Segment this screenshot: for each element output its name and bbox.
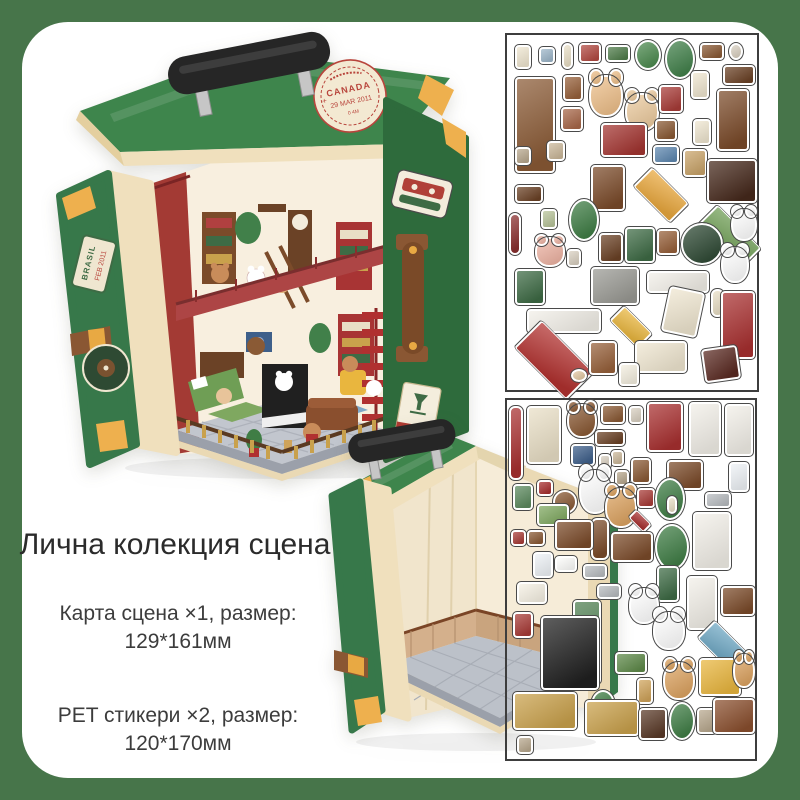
- sticker-hourglass: [637, 678, 653, 704]
- sticker-vase-2: [533, 552, 553, 578]
- sticker-brasil-stamp-sticker: [661, 286, 706, 338]
- sticker-door-frame: [725, 404, 753, 456]
- sticker-red-baton: [509, 213, 521, 255]
- sticker-jar-small: [629, 406, 643, 424]
- sticker-tag-paper: [693, 119, 711, 145]
- sticker-sheet-2-items: [507, 400, 755, 759]
- sticker-ladder: [591, 165, 625, 211]
- sticker-jar-2: [611, 450, 624, 466]
- sticker-beige-tag: [691, 71, 709, 99]
- sticker-radio-wedge: [701, 345, 741, 384]
- sticker-fragile-label-sticker: [619, 363, 639, 386]
- sticker-sofa-brown: [713, 698, 755, 734]
- sticker-canada-stamp-sticker: [635, 341, 687, 373]
- sticker-bunny-cup: [731, 209, 757, 241]
- sticker-red-pot: [513, 612, 533, 638]
- sticker-books-mini-2: [637, 488, 655, 508]
- sticker-mouse-small: [571, 369, 587, 382]
- sticker-wall-shelf-2: [515, 185, 543, 203]
- sticker-gramophone: [599, 233, 623, 263]
- sticker-tray-gray-1: [583, 564, 607, 579]
- sticker-rug-mini-red: [628, 509, 652, 533]
- sticker-bench-green-2: [615, 652, 647, 674]
- sticker-monstera: [655, 524, 689, 570]
- spec-pet-stickers-line2: 120*170мм: [18, 730, 338, 758]
- sticker-small-books: [655, 119, 677, 141]
- sticker-bear-pink: [535, 237, 565, 267]
- sticker-book-stack: [579, 43, 601, 63]
- product-title: Лична колекция сцена: [14, 528, 336, 562]
- vinyl-sticker: [83, 345, 129, 391]
- sticker-green-box-books: [606, 45, 630, 62]
- sticker-stool-tall-green: [657, 566, 679, 602]
- sticker-bunny-book: [721, 247, 749, 283]
- sticker-display-cabinet: [611, 532, 653, 562]
- product-image: CANADA 29 MAR 2011 0 4M + BRASIL FE: [0, 0, 800, 800]
- suitcase-right-side: FRAGILE: [386, 100, 466, 460]
- sticker-balustrade-2: [585, 700, 639, 736]
- sticker-deer-head: [567, 404, 597, 438]
- sticker-palm-plant: [569, 199, 599, 241]
- sticker-sheet-2: [505, 398, 757, 761]
- sticker-mini-bookshelf: [563, 75, 583, 101]
- sticker-bear-leaf: [733, 654, 755, 688]
- spec-scene-card-line2: 129*161мм: [18, 628, 338, 656]
- sticker-red-cabinet: [647, 402, 683, 452]
- sticker-wall-shelf-3: [595, 430, 625, 446]
- sticker-frame-green-2: [513, 484, 533, 510]
- sticker-crate: [657, 229, 679, 255]
- sticker-mirror-stand: [693, 512, 731, 570]
- sticker-round-frame: [729, 43, 743, 60]
- sticker-butterfly-frame: [571, 444, 595, 466]
- sticker-dresser-dark: [707, 159, 757, 203]
- sticker-candlestick: [562, 43, 573, 69]
- sticker-note-paper: [515, 45, 531, 69]
- sticker-blue-box: [653, 145, 679, 164]
- sticker-green-armchair: [515, 269, 545, 305]
- sticker-treasure-chest: [601, 404, 625, 424]
- sticker-red-chest: [601, 123, 647, 157]
- sticker-frame-green: [541, 209, 557, 229]
- sticker-dresser-2: [555, 520, 593, 550]
- spec-pet-stickers: PET стикери ×2, размер: 120*170мм: [18, 702, 338, 757]
- sticker-vinyl-record: [681, 223, 723, 265]
- sticker-brown-case: [700, 43, 724, 60]
- sticker-plant-5: [669, 702, 695, 740]
- sticker-gray-box: [705, 492, 731, 508]
- sticker-hanging-plant: [635, 40, 661, 70]
- sticker-bucket-books: [683, 149, 707, 177]
- sticker-bear-scarf: [663, 662, 695, 700]
- sticker-bookshelf-mini: [631, 458, 651, 484]
- sticker-soap-dish: [517, 582, 547, 604]
- sticker-bear-lamp: [589, 75, 623, 117]
- sticker-piano-black: [541, 616, 599, 690]
- sticker-blue-frame: [539, 47, 555, 64]
- sticker-dresser-3: [721, 586, 755, 616]
- sticker-grandfather-clock: [717, 89, 749, 151]
- sticker-fireplace-green: [625, 227, 655, 263]
- sticker-books-3: [527, 530, 545, 546]
- sticker-candle-2: [667, 496, 677, 514]
- sticker-vase-porcelain: [729, 462, 749, 492]
- sticker-frame-pair: [547, 141, 565, 161]
- sticker-stool-cat: [589, 341, 617, 375]
- sticker-wall-shelf-dark: [723, 65, 755, 85]
- sticker-kitchen-counter: [591, 267, 639, 305]
- spec-scene-card-line1: Карта сцена ×1, размер:: [18, 600, 338, 628]
- sticker-red-book: [511, 530, 526, 546]
- sticker-gift-box: [537, 480, 553, 496]
- sticker-book-open: [555, 556, 577, 572]
- sticker-mini-frame: [515, 147, 531, 165]
- sticker-balustrade-1: [513, 692, 577, 730]
- sticker-cello: [591, 518, 609, 560]
- sticker-clothes-rack: [689, 402, 721, 456]
- sticker-red-books: [659, 85, 683, 113]
- sticker-frame-tiny-3: [517, 736, 533, 754]
- sticker-cat-white-2: [653, 612, 685, 650]
- sticker-table-round: [639, 708, 667, 740]
- sticker-arched-window: [527, 406, 561, 464]
- sticker-sheet-1: [505, 33, 759, 392]
- sticker-jar: [567, 249, 581, 267]
- sticker-book-row: [561, 107, 583, 131]
- sticker-orange-rug: [633, 167, 689, 223]
- sticker-sheet-1-items: [507, 35, 757, 390]
- sticker-tray-gray-2: [597, 584, 621, 599]
- spec-scene-card: Карта сцена ×1, размер: 129*161мм: [18, 600, 338, 655]
- sticker-curtain-red: [509, 406, 523, 480]
- spec-pet-stickers-line1: PET стикери ×2, размер:: [18, 702, 338, 730]
